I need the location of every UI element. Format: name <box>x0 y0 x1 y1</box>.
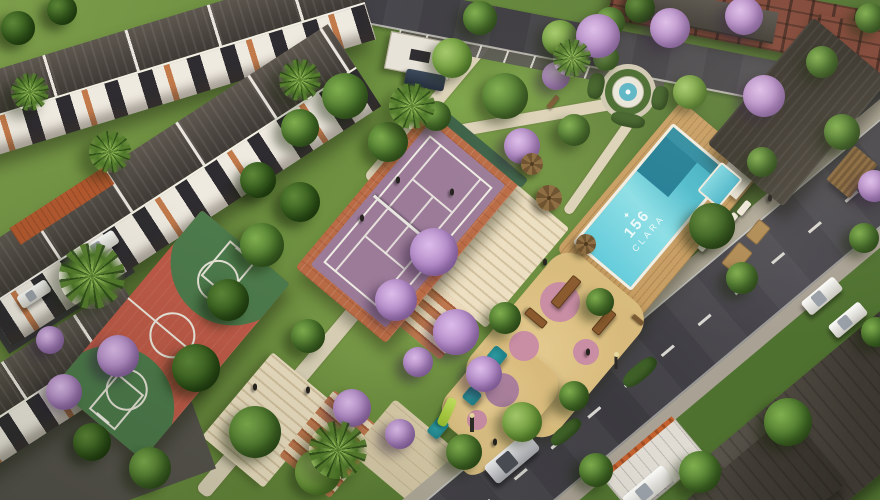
tree-green <box>579 453 613 487</box>
umbrella <box>576 234 596 254</box>
tree-green <box>322 73 368 119</box>
person <box>586 349 590 356</box>
tree-dark <box>47 0 77 25</box>
tree-purple <box>46 374 82 410</box>
tree-green <box>558 114 590 146</box>
tree-green <box>679 451 721 493</box>
tree-purple <box>375 279 417 321</box>
tree-green <box>824 114 860 150</box>
umbrella <box>536 185 562 211</box>
tree-green <box>240 223 284 267</box>
tree-purple <box>36 326 64 354</box>
tree-purple <box>650 8 690 48</box>
palm <box>11 73 49 111</box>
person <box>306 387 310 394</box>
person <box>360 215 364 222</box>
tree-light <box>432 38 472 78</box>
tree-green <box>806 46 838 78</box>
tree-light <box>673 75 707 109</box>
fountain-jet <box>626 90 631 95</box>
umbrella <box>521 153 543 175</box>
tree-green <box>482 73 528 119</box>
tree-light <box>502 402 542 442</box>
tree-green <box>368 122 408 162</box>
person <box>396 177 400 184</box>
palm <box>553 39 591 77</box>
tree-green <box>281 109 319 147</box>
tree-green <box>129 447 171 489</box>
tree-green <box>849 223 879 253</box>
lamp <box>615 355 618 369</box>
tree-purple <box>410 228 458 276</box>
tree-green <box>747 147 777 177</box>
palm <box>279 59 321 101</box>
tree-dark <box>207 279 249 321</box>
tree-dark <box>689 203 735 249</box>
lamp <box>470 416 474 432</box>
palm <box>389 83 435 129</box>
tree-green <box>463 1 497 35</box>
circle-pink <box>509 331 539 361</box>
tree-purple <box>743 75 785 117</box>
tree-green <box>559 381 589 411</box>
tree-dark <box>280 182 320 222</box>
tree-green <box>726 262 758 294</box>
palm <box>89 131 131 173</box>
tree-green <box>229 406 281 458</box>
tree-purple <box>403 347 433 377</box>
person <box>768 195 772 202</box>
palm <box>309 421 367 479</box>
tree-green <box>855 3 880 33</box>
aerial-community-rendering: ✦ 156 CLARA <box>0 0 880 500</box>
person <box>493 439 497 446</box>
fountain <box>600 64 656 120</box>
tree-green <box>489 302 521 334</box>
palm <box>59 243 125 309</box>
tree-purple <box>385 419 415 449</box>
tree-green <box>291 319 325 353</box>
person <box>543 259 547 266</box>
tree-dark <box>240 162 276 198</box>
person <box>253 384 257 391</box>
tree-dark <box>1 11 35 45</box>
tree-purple <box>433 309 479 355</box>
tree-green <box>586 288 614 316</box>
tree-green <box>764 398 812 446</box>
tree-purple <box>466 356 502 392</box>
tree-green <box>446 434 482 470</box>
tree-dark <box>73 423 111 461</box>
tree-dark <box>172 344 220 392</box>
person <box>450 189 454 196</box>
tree-purple <box>97 335 139 377</box>
